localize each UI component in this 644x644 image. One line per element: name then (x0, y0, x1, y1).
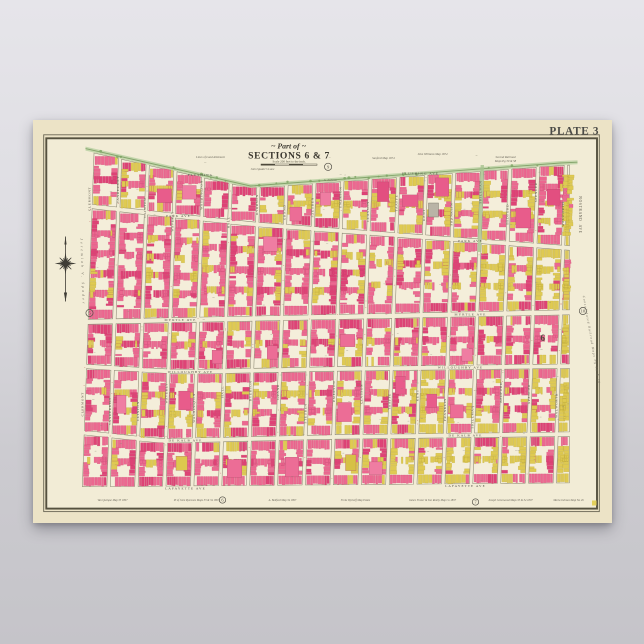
svg-text:WALWORTH: WALWORTH (561, 202, 565, 227)
svg-text:LAFAYETTE AVE: LAFAYETTE AVE (165, 486, 206, 490)
svg-text:SKILLMAN: SKILLMAN (470, 405, 474, 428)
svg-text:RYERSON: RYERSON (248, 380, 252, 401)
svg-text:A. Bedford Map 34 1897: A. Bedford Map 34 1897 (267, 499, 296, 502)
svg-text:MYRTLE AVE: MYRTLE AVE (164, 318, 196, 322)
svg-text:SPENCER: SPENCER (534, 182, 538, 202)
svg-text:Maps Pg 39 & 58: Maps Pg 39 & 58 (493, 159, 516, 163)
svg-text:BEDFORD: BEDFORD (505, 204, 509, 225)
svg-text:NOSTRAND AVE: NOSTRAND AVE (578, 196, 582, 233)
svg-text:HALL: HALL (226, 217, 230, 229)
svg-text:WILLOUGHBY AVE: WILLOUGHBY AVE (167, 370, 212, 374)
svg-text:Van Quelque Map 35 1897: Van Quelque Map 35 1897 (97, 499, 128, 502)
svg-text:STEUBEN: STEUBEN (303, 403, 307, 423)
svg-text:EMERSON: EMERSON (331, 381, 335, 402)
svg-text:HALL: HALL (220, 386, 224, 398)
svg-text:WASHINGTON: WASHINGTON (199, 180, 203, 210)
svg-text:Scale 200 feet to the inch.: Scale 200 feet to the inch. (272, 159, 305, 163)
svg-text:STEUBEN: STEUBEN (310, 197, 314, 217)
svg-text:DE KALB AVE: DE KALB AVE (448, 434, 482, 438)
svg-text:Maria Johnson Map No 26: Maria Johnson Map No 26 (552, 499, 584, 502)
svg-text:Joseph Greenwood Maps 33 & 34: Joseph Greenwood Maps 33 & 34 1897 (488, 499, 533, 502)
svg-text:FLUSHING: FLUSHING (187, 173, 213, 177)
svg-text:CLASSON: CLASSON (359, 384, 363, 404)
svg-text:MYRTLE AVE: MYRTLE AVE (454, 312, 486, 316)
svg-text:Sanford Map 1874: Sanford Map 1874 (372, 156, 395, 160)
svg-text:PARK AVE: PARK AVE (458, 239, 483, 243)
svg-text:PARK AVE: PARK AVE (166, 214, 191, 218)
svg-text:SPENCER: SPENCER (527, 384, 531, 404)
svg-text:TAAFFE: TAAFFE (394, 195, 398, 212)
svg-text:WAVERLY: WAVERLY (164, 383, 168, 404)
svg-text:GRAND: GRAND (276, 384, 280, 400)
svg-text:CLINTON: CLINTON (136, 401, 140, 421)
svg-text:WASHINGTON: WASHINGTON (191, 393, 195, 423)
svg-text:BEDFORD: BEDFORD (499, 382, 503, 403)
svg-text:CLASSON: CLASSON (366, 201, 370, 221)
svg-text:TAAFFE: TAAFFE (387, 393, 391, 410)
svg-text:~ Part of ~: ~ Part of ~ (270, 142, 306, 151)
svg-text:RYERSON: RYERSON (254, 194, 258, 215)
svg-text:EMERSON: EMERSON (338, 187, 342, 208)
svg-text:WALWORTH: WALWORTH (554, 393, 558, 418)
svg-text:VANDERBILT: VANDERBILT (116, 175, 120, 203)
svg-text:SKILLMAN: SKILLMAN (478, 180, 482, 203)
svg-text:LAFAYETTE AVE: LAFAYETTE AVE (445, 484, 486, 488)
svg-text:FLUSHING AVE: FLUSHING AVE (401, 172, 438, 176)
svg-text:PLATE 3: PLATE 3 (549, 125, 599, 137)
svg-text:Freke Wyckoff Map Estate: Freke Wyckoff Map Estate (339, 499, 370, 502)
svg-text:CLERMONT: CLERMONT (80, 392, 84, 416)
svg-text:FRANKLIN: FRANKLIN (442, 398, 446, 421)
svg-text:S. Jackson: S. Jackson (324, 178, 337, 182)
svg-text:James Frazer & Son Realty Map: James Frazer & Son Realty Map Co 1897 (409, 499, 457, 502)
svg-text:VANDERBILT: VANDERBILT (108, 397, 112, 425)
svg-text:FRANKLIN: FRANKLIN (449, 203, 453, 226)
svg-text:CLINTON: CLINTON (143, 198, 147, 218)
svg-text:6: 6 (540, 333, 545, 343)
svg-text:John Spader's Lane: John Spader's Lane (250, 167, 274, 171)
svg-text:John Williams Map 1874: John Williams Map 1874 (417, 152, 448, 156)
svg-text:Pt of John Ryersons Maps 33 &: Pt of John Ryersons Maps 33 & 34 1897 (172, 499, 219, 502)
svg-text:GRAND: GRAND (282, 205, 286, 221)
svg-text:DE KALB AVE: DE KALB AVE (168, 439, 202, 443)
svg-text:WILLOUGHBY AVE: WILLOUGHBY AVE (437, 366, 482, 370)
svg-text:Lines of Land Allotment: Lines of Land Allotment (195, 155, 225, 159)
svg-text:CLERMONT: CLERMONT (87, 186, 91, 210)
svg-text:KENT: KENT (415, 389, 419, 401)
svg-text:KENT: KENT (421, 209, 425, 221)
